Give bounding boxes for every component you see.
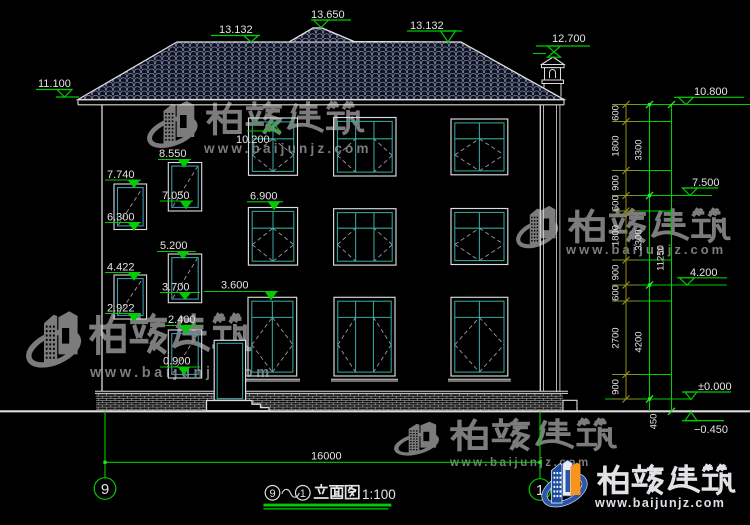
- svg-text:13.650: 13.650: [311, 9, 345, 21]
- svg-text:13.132: 13.132: [219, 24, 253, 36]
- svg-text:16000: 16000: [311, 451, 342, 463]
- svg-text:11.100: 11.100: [38, 78, 71, 90]
- svg-text:5.200: 5.200: [160, 240, 188, 252]
- svg-text:900: 900: [611, 379, 622, 395]
- svg-text:www.baijunjz.com: www.baijunjz.com: [565, 242, 726, 257]
- svg-text:3.700: 3.700: [162, 282, 190, 294]
- svg-text:3.600: 3.600: [221, 280, 249, 292]
- svg-text:11250: 11250: [656, 245, 667, 271]
- svg-text:8.550: 8.550: [159, 148, 187, 160]
- svg-text:900: 900: [611, 265, 622, 281]
- svg-text:7.050: 7.050: [162, 190, 190, 202]
- svg-text:4200: 4200: [634, 331, 645, 352]
- svg-text:600: 600: [611, 285, 622, 301]
- svg-text:3300: 3300: [634, 139, 645, 160]
- svg-text:9: 9: [269, 488, 275, 500]
- svg-text:1: 1: [300, 488, 306, 500]
- svg-text:7.740: 7.740: [107, 169, 135, 181]
- svg-text:1800: 1800: [611, 135, 622, 156]
- svg-text:2700: 2700: [611, 327, 622, 348]
- svg-text:12.700: 12.700: [552, 33, 586, 45]
- svg-text:www.baijunjz.com: www.baijunjz.com: [594, 496, 725, 510]
- svg-text:4.422: 4.422: [107, 262, 135, 274]
- svg-text:900: 900: [611, 175, 622, 191]
- svg-text:3300: 3300: [634, 229, 645, 250]
- svg-text:600: 600: [611, 195, 622, 211]
- svg-text:0.900: 0.900: [163, 356, 191, 368]
- svg-text:6.900: 6.900: [250, 191, 278, 203]
- svg-text:13.132: 13.132: [410, 20, 444, 32]
- svg-text:2.400: 2.400: [168, 314, 196, 326]
- svg-text:9: 9: [101, 481, 109, 498]
- svg-text:1:100: 1:100: [362, 487, 396, 502]
- svg-text:7.500: 7.500: [692, 177, 720, 189]
- svg-text:2.922: 2.922: [107, 303, 135, 315]
- svg-text:6.300: 6.300: [107, 212, 135, 224]
- svg-text:10.800: 10.800: [694, 86, 728, 98]
- svg-text:450: 450: [649, 414, 660, 430]
- svg-text:www.baijunjz.com: www.baijunjz.com: [203, 141, 372, 156]
- svg-text:±0.000: ±0.000: [698, 381, 732, 393]
- svg-text:600: 600: [611, 105, 622, 121]
- svg-text:10.200: 10.200: [236, 134, 270, 146]
- svg-text:1800: 1800: [611, 225, 622, 246]
- svg-text:−0.450: −0.450: [694, 424, 728, 436]
